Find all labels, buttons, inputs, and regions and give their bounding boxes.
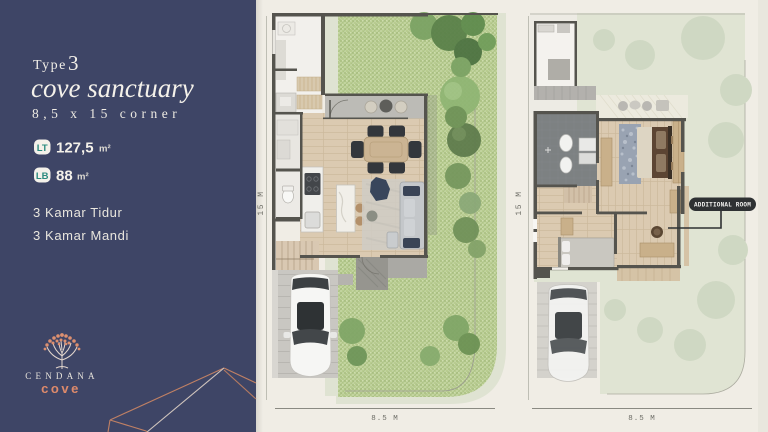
svg-text:LB: LB (36, 171, 49, 182)
svg-text:ADDITIONAL ROOM: ADDITIONAL ROOM (694, 202, 751, 209)
svg-text:3 Kamar Tidur: 3 Kamar Tidur (33, 205, 123, 220)
svg-text:cove: cove (41, 381, 81, 396)
svg-text:3 Kamar Mandi: 3 Kamar Mandi (33, 228, 129, 243)
svg-text:3: 3 (68, 51, 79, 75)
svg-text:15 M: 15 M (257, 190, 266, 215)
svg-text:127,5: 127,5 (56, 140, 94, 157)
svg-text:m²: m² (99, 144, 111, 155)
svg-text:8,5 x 15 corner: 8,5 x 15 corner (32, 106, 181, 121)
svg-text:8.5 M: 8.5 M (371, 415, 399, 423)
svg-text:m²: m² (77, 172, 89, 183)
svg-text:LT: LT (37, 143, 48, 154)
svg-text:8.5 M: 8.5 M (628, 415, 656, 423)
svg-text:88: 88 (56, 168, 73, 185)
svg-text:15 M: 15 M (515, 190, 524, 215)
svg-text:cove sanctuary: cove sanctuary (31, 73, 194, 103)
svg-text:CENDANA: CENDANA (25, 371, 98, 381)
svg-text:Type: Type (33, 58, 67, 73)
